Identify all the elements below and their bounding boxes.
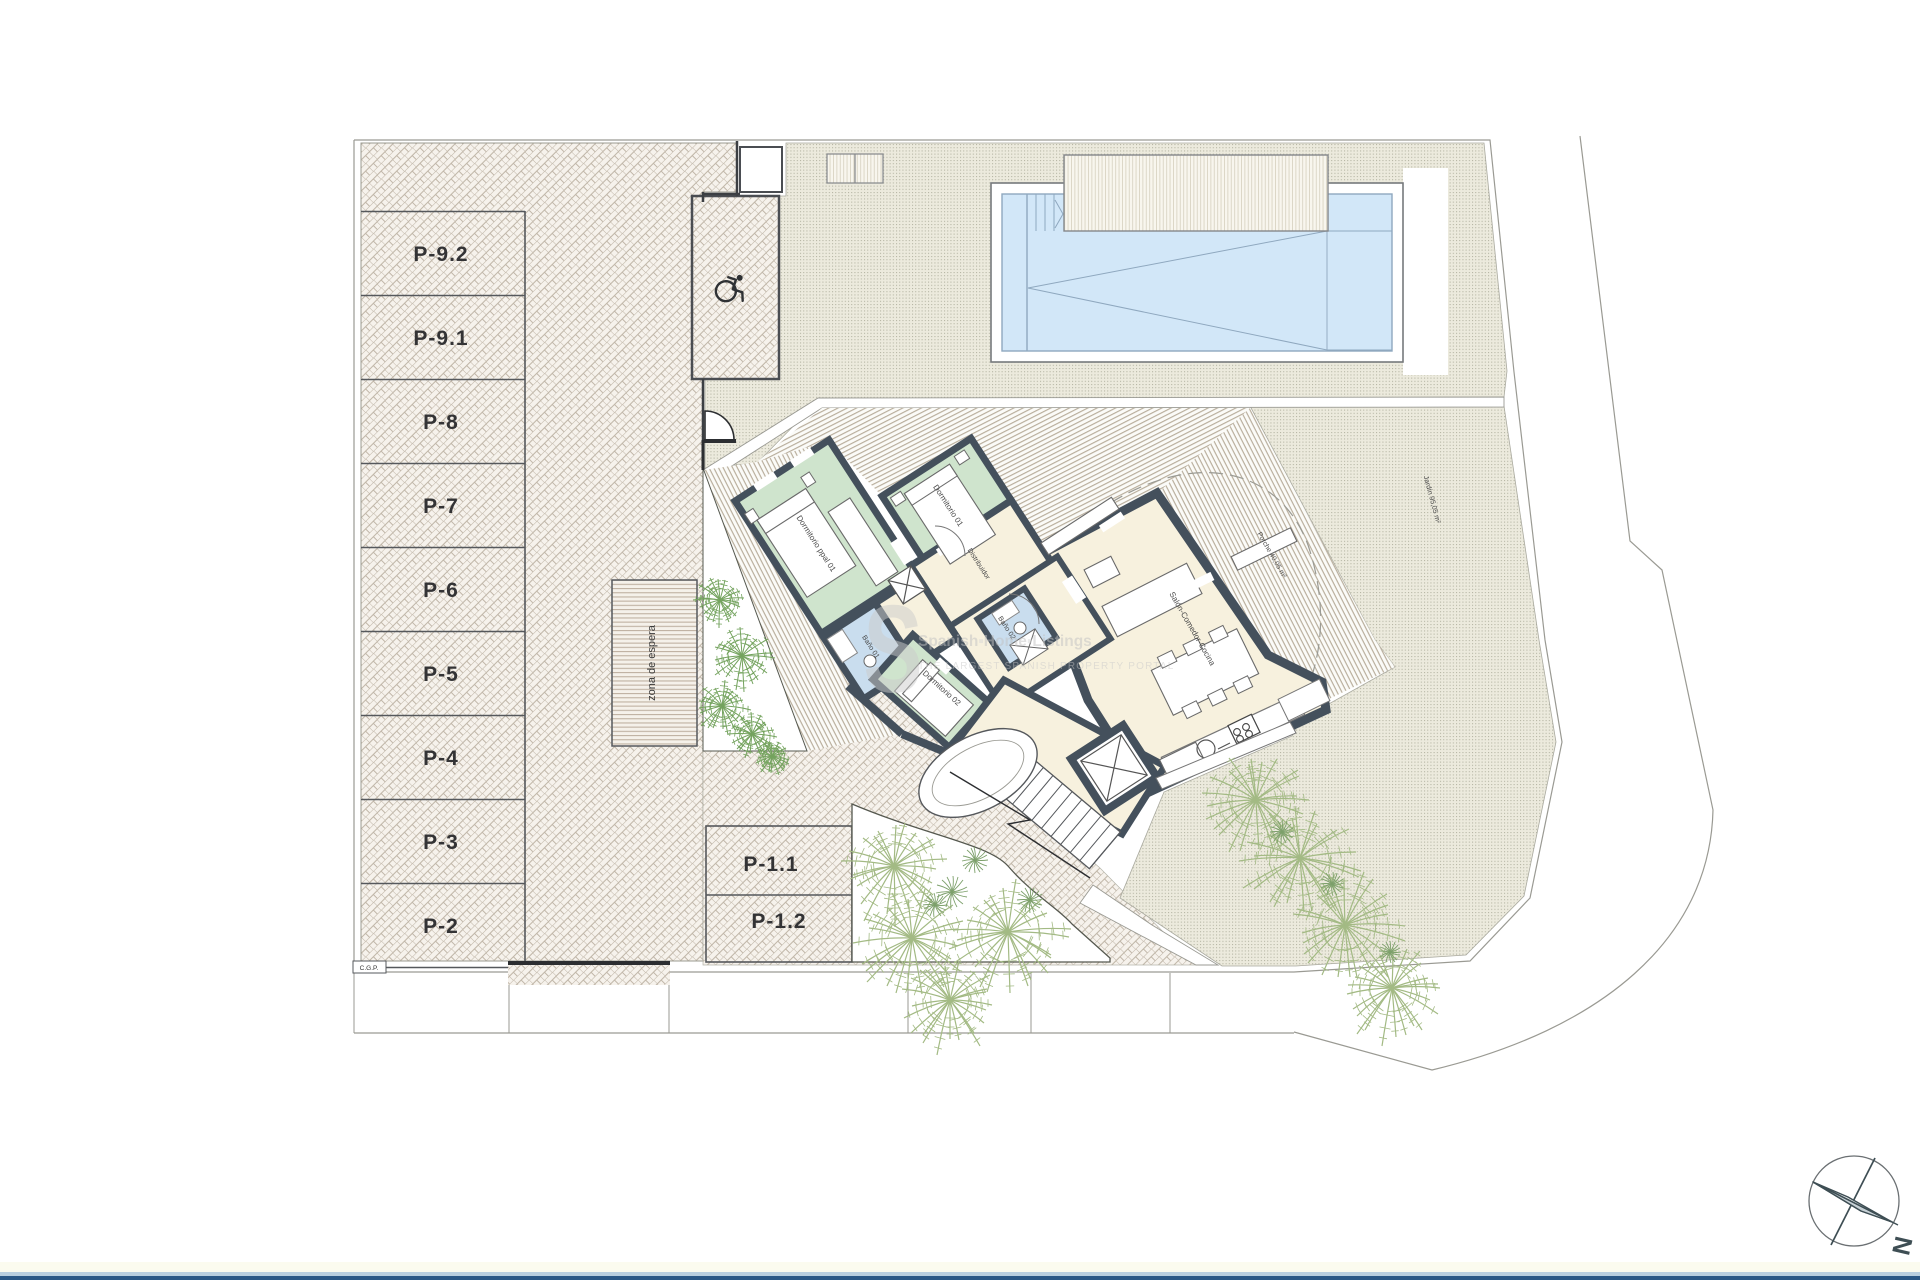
- svg-text:P-1.1: P-1.1: [743, 853, 798, 876]
- svg-text:zona de espera: zona de espera: [646, 624, 658, 701]
- svg-text:P-3: P-3: [423, 831, 459, 854]
- svg-text:P-2: P-2: [423, 915, 459, 938]
- svg-text:P-8: P-8: [423, 411, 459, 434]
- svg-text:S: S: [863, 580, 923, 719]
- svg-text:P-9.2: P-9.2: [413, 243, 468, 266]
- svg-text:THE LARGEST SPANISH PROPERTY P: THE LARGEST SPANISH PROPERTY PORTAL: [918, 661, 1175, 672]
- svg-text:P-9.1: P-9.1: [413, 327, 468, 350]
- svg-text:P-5: P-5: [423, 663, 459, 686]
- svg-text:P-1.2: P-1.2: [751, 910, 806, 933]
- svg-text:C.G.P.: C.G.P.: [360, 965, 379, 972]
- svg-text:Spanish▪Home▪Listings: Spanish▪Home▪Listings: [918, 633, 1092, 650]
- svg-text:P-6: P-6: [423, 579, 459, 602]
- svg-text:P-4: P-4: [423, 747, 459, 770]
- svg-text:P-7: P-7: [423, 495, 459, 518]
